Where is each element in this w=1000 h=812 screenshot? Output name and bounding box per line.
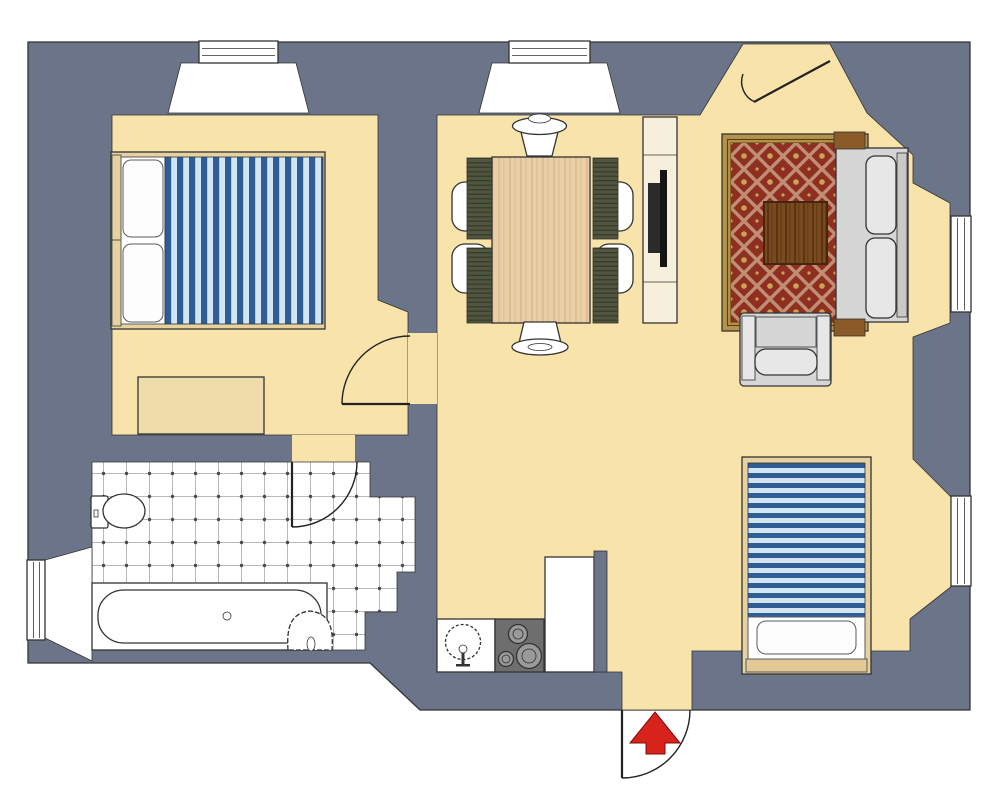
bed-foot-plank [746,659,867,672]
stove-burner-large [517,644,542,669]
coffee-table [764,202,827,264]
head-chair-body [521,132,558,156]
living-room-window [951,216,971,312]
single-bed [742,457,871,674]
dining-table [492,157,590,323]
sofa-cushion [866,238,896,318]
tv-console [643,117,677,323]
dresser [138,377,264,434]
floor-plan-drawing [0,0,1000,812]
toilet-flush-button [94,510,98,517]
sofa [834,132,908,336]
window-sill [509,41,590,63]
armchair-arm [817,316,830,380]
central-floor [437,44,952,710]
basin-tap [307,637,315,651]
sofa-arm-wood [834,319,865,336]
striped-blanket [748,463,865,617]
chair-back [467,158,492,239]
bed-headboard [112,155,121,326]
tv-screen [660,170,667,267]
stove-burner-small [499,652,514,667]
entrance-bottom [622,710,690,778]
foot-chair-finial [528,344,552,351]
kitchen-wall-stub [594,551,607,672]
head-chair-finial [529,114,551,123]
sofa-cushion [866,156,896,234]
bay-reveal [479,63,620,113]
entrance-arrow-icon [630,712,680,754]
kitchen-tall-cabinet [545,557,594,672]
window-glass [27,560,45,640]
chair-back [467,248,492,323]
bay-reveal [168,63,309,113]
sofa-backrest [897,153,907,317]
chair-back [593,248,618,323]
bathtub-drain [223,612,231,620]
floor-plan-stage [0,0,1000,812]
window-glass [951,496,971,586]
bathroom-corridor [292,435,355,463]
pillow [757,621,856,654]
bedroom-door-opening [408,333,437,404]
toilet-bowl [103,494,145,528]
window-sill [199,41,278,63]
armchair-cushion [755,349,817,375]
pillow [123,244,163,322]
chair-back [593,158,618,239]
stove-burner-top [509,625,528,644]
striped-blanket [165,157,323,324]
armchair-arm [742,316,755,380]
window-glass [951,216,971,312]
toilet [91,494,145,528]
sofa-arm-wood [834,132,865,149]
double-bed [111,152,325,329]
room-central-hall-dining-living [437,44,952,710]
armchair [740,313,831,386]
second-bedroom-window [951,496,971,586]
sink-tap-bar [456,664,470,667]
pillow [123,160,163,237]
armchair-seat [756,317,816,347]
